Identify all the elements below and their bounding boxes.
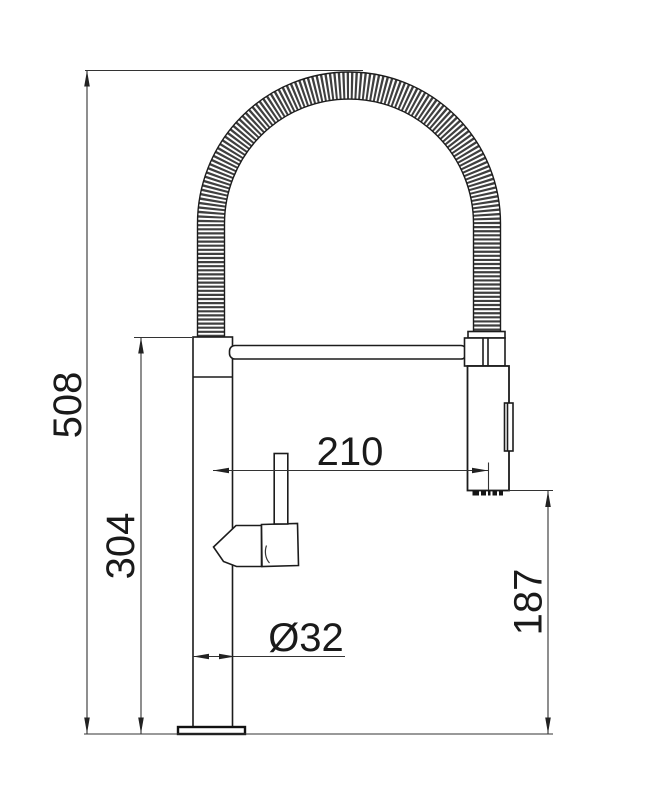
dimension-label-spout-reach: 210	[317, 430, 384, 474]
aerator-dash	[481, 491, 486, 496]
hose-rib-texture	[211, 86, 487, 338]
arrowhead-up	[545, 491, 551, 507]
faucet-technical-drawing: 508 304 210	[0, 0, 645, 800]
dimension-label-overall-height: 508	[46, 372, 90, 439]
dimension-outlet-clearance: 187	[507, 491, 554, 734]
aerator	[473, 491, 504, 496]
hose-outer-outline	[198, 72, 501, 337]
hose-inner-outline	[225, 99, 474, 337]
dimension-label-body-height: 304	[99, 513, 143, 580]
drawing-page: 508 304 210	[0, 0, 645, 800]
dimension-body-height: 304	[99, 338, 192, 734]
base-flange	[178, 727, 245, 734]
aerator-dash	[499, 491, 503, 496]
dimension-label-base-diameter: Ø32	[268, 616, 344, 660]
arrowhead-down	[84, 718, 90, 734]
arrowhead-down	[138, 718, 144, 734]
aerator-dash	[493, 491, 498, 496]
spout-arm	[230, 346, 467, 360]
spring-hose	[198, 72, 501, 337]
dimension-label-outlet-clearance: 187	[507, 569, 551, 636]
hose-end-flange	[468, 332, 505, 339]
aerator-dash	[473, 491, 480, 496]
column-body	[193, 337, 233, 727]
spray-mode-button	[505, 403, 514, 451]
dimension-spout-reach: 210	[213, 430, 489, 490]
connector-collar	[465, 338, 506, 366]
arrowhead-down	[545, 718, 551, 734]
handle-stem	[274, 454, 288, 525]
aerator-dash	[488, 491, 491, 496]
arrowhead-up	[84, 71, 90, 87]
arrowhead-up	[138, 338, 144, 354]
